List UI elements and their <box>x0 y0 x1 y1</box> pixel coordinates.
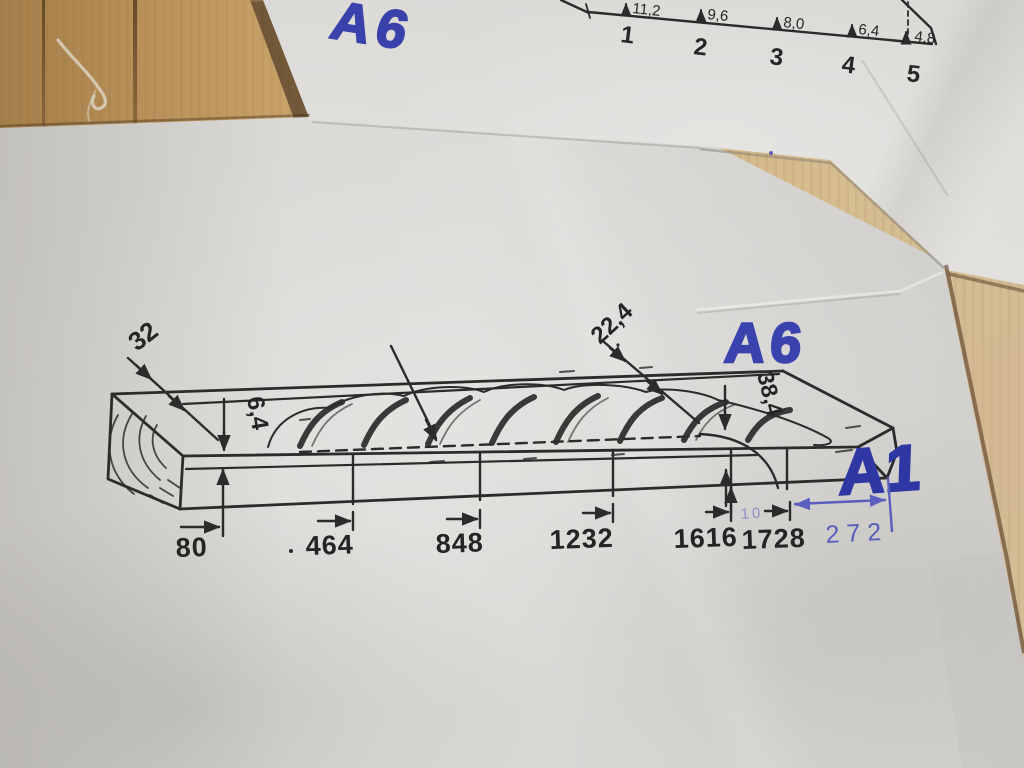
photo-scene: 11,2 9,6 8,0 6,4 4,8 1 2 3 4 5 <box>0 0 1024 768</box>
